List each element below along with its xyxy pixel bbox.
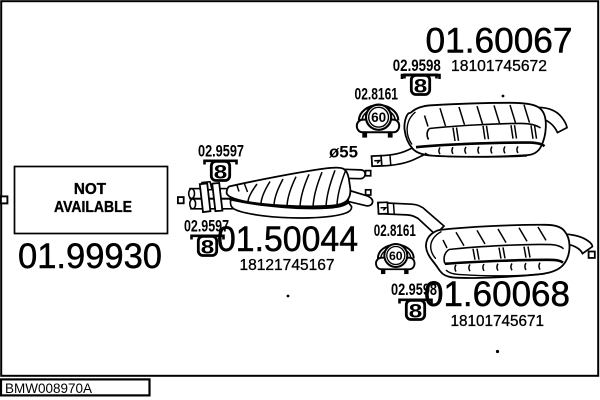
svg-text:01.60067: 01.60067	[426, 21, 573, 61]
svg-text:01.99930: 01.99930	[18, 236, 162, 276]
svg-text:02.8161: 02.8161	[355, 86, 399, 104]
svg-text:NOT: NOT	[74, 181, 107, 198]
svg-text:01.50044: 01.50044	[217, 219, 358, 259]
svg-text:BMW008970A: BMW008970A	[5, 380, 93, 396]
svg-text:01.60068: 01.60068	[424, 274, 570, 314]
svg-text:18101745672: 18101745672	[451, 58, 547, 75]
svg-text:18121745167: 18121745167	[240, 257, 335, 274]
svg-text:02.8161: 02.8161	[374, 222, 416, 240]
svg-text:ø55: ø55	[329, 143, 358, 162]
svg-text:18101745671: 18101745671	[451, 313, 545, 330]
svg-text:AVAILABLE: AVAILABLE	[54, 199, 132, 216]
svg-text:02.9597: 02.9597	[198, 143, 244, 161]
